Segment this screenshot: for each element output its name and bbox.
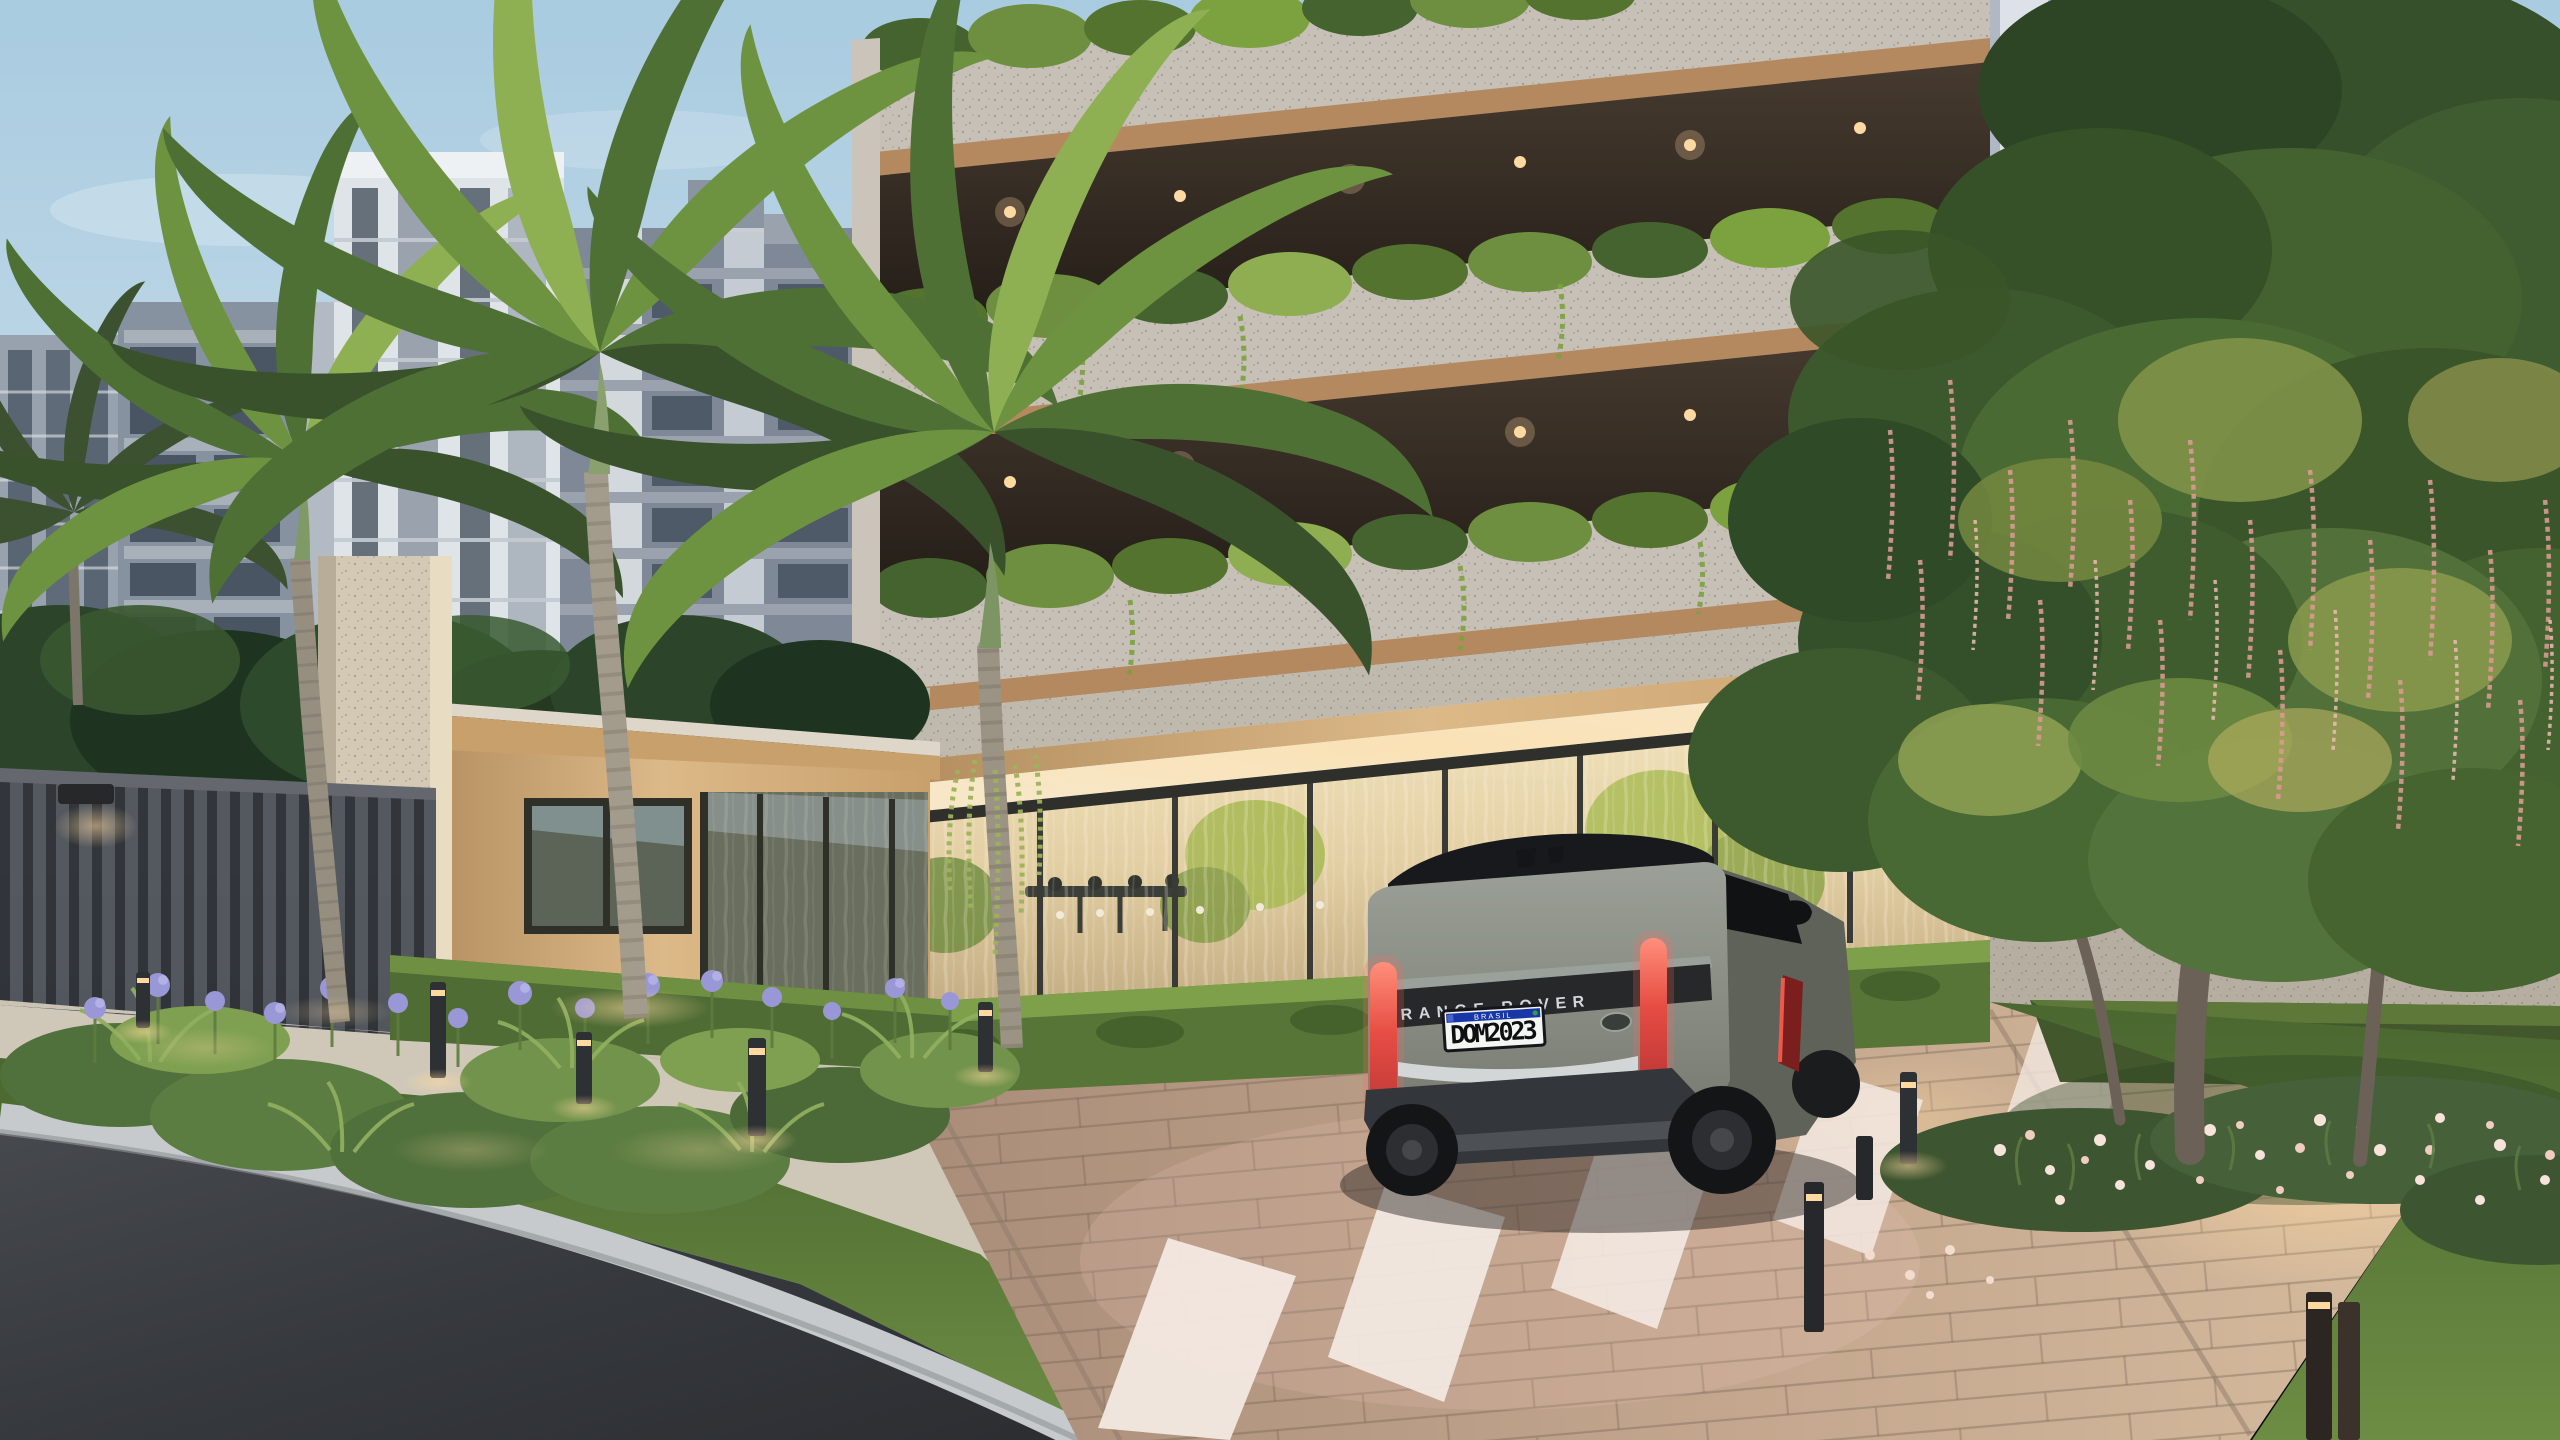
gatehouse-window	[524, 798, 692, 934]
bollard-light	[1856, 1136, 1873, 1200]
plate-number: DOM2023	[1449, 1015, 1539, 1049]
side-mirror	[1780, 900, 1812, 924]
car-front-wheel	[1792, 1050, 1860, 1118]
license-plate: BRASIL DOM2023	[1443, 1005, 1545, 1051]
bollard-light	[1804, 1182, 1824, 1332]
architectural-render-scene: RANGE ROVER BRASIL DOM2023	[0, 0, 2560, 1440]
